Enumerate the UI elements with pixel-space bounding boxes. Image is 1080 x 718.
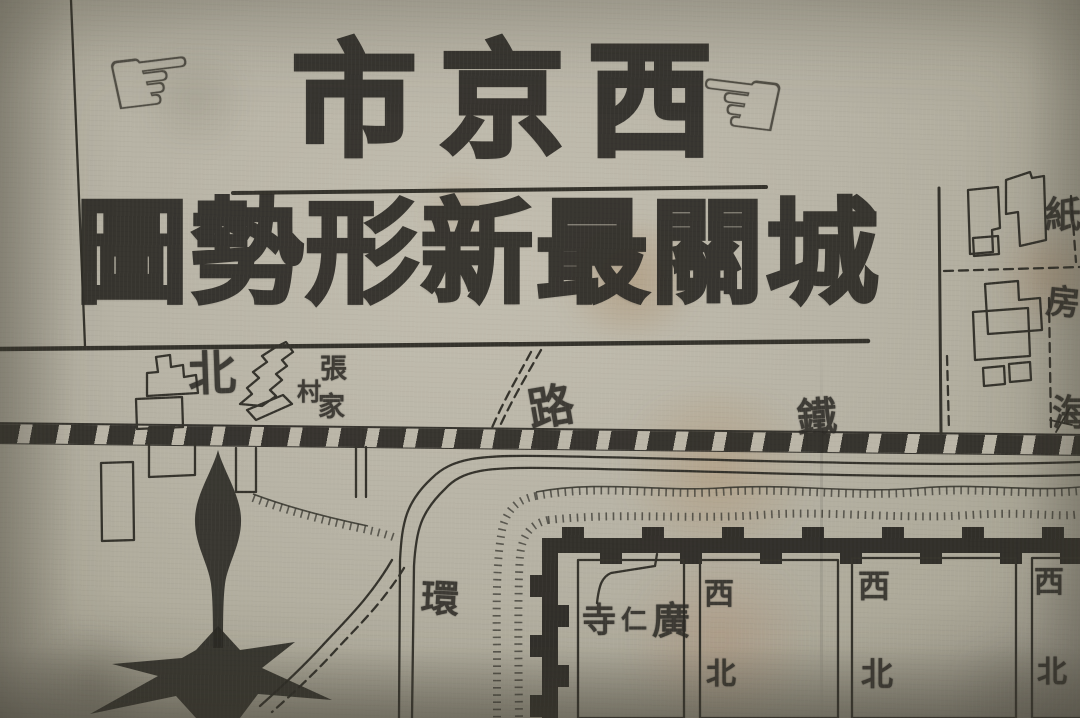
label-fang: 房 xyxy=(1044,284,1080,321)
block3-label-bottom: 北 xyxy=(1037,658,1067,688)
block2-label-bottom: 北 xyxy=(861,658,893,690)
block2-label-top: 西 xyxy=(858,570,890,602)
manicule-right-icon: ☞ xyxy=(98,23,203,138)
label-ring: 環 xyxy=(420,579,460,619)
label-hai: 海 xyxy=(1052,396,1080,432)
label-iron: 鐵 xyxy=(796,397,839,440)
label-zhi: 紙 xyxy=(1045,198,1080,234)
label-road: 路 xyxy=(524,380,577,433)
ring-road xyxy=(399,456,1080,718)
label-village-zhang: 張 xyxy=(320,356,347,383)
map-photo: ☞ ☜ 市京西 圖勢形新最關城 北 張 村 家 路 鐵 環 紙 房 海 寺 仁 … xyxy=(0,0,1080,718)
temple-char-guang: 廣 xyxy=(652,602,690,640)
block1-label-bottom: 北 xyxy=(706,660,736,690)
building-outlines-right xyxy=(968,172,1046,386)
label-village-jia: 家 xyxy=(318,394,345,421)
temple-char-ren: 仁 xyxy=(621,608,647,634)
map-title-line1: 市京西 xyxy=(292,40,736,164)
block3-label-top: 西 xyxy=(1034,568,1064,598)
temple-char-si: 寺 xyxy=(582,604,616,638)
block1-label-top: 西 xyxy=(704,580,734,610)
map-title-line2: 圖勢形新最關城 xyxy=(76,198,881,310)
north-arrow xyxy=(90,450,332,718)
label-temple: 寺 仁 廣 xyxy=(582,602,690,640)
section-divider-line xyxy=(939,188,941,433)
title-underline-bottom xyxy=(0,341,868,349)
label-north: 北 xyxy=(187,349,237,399)
